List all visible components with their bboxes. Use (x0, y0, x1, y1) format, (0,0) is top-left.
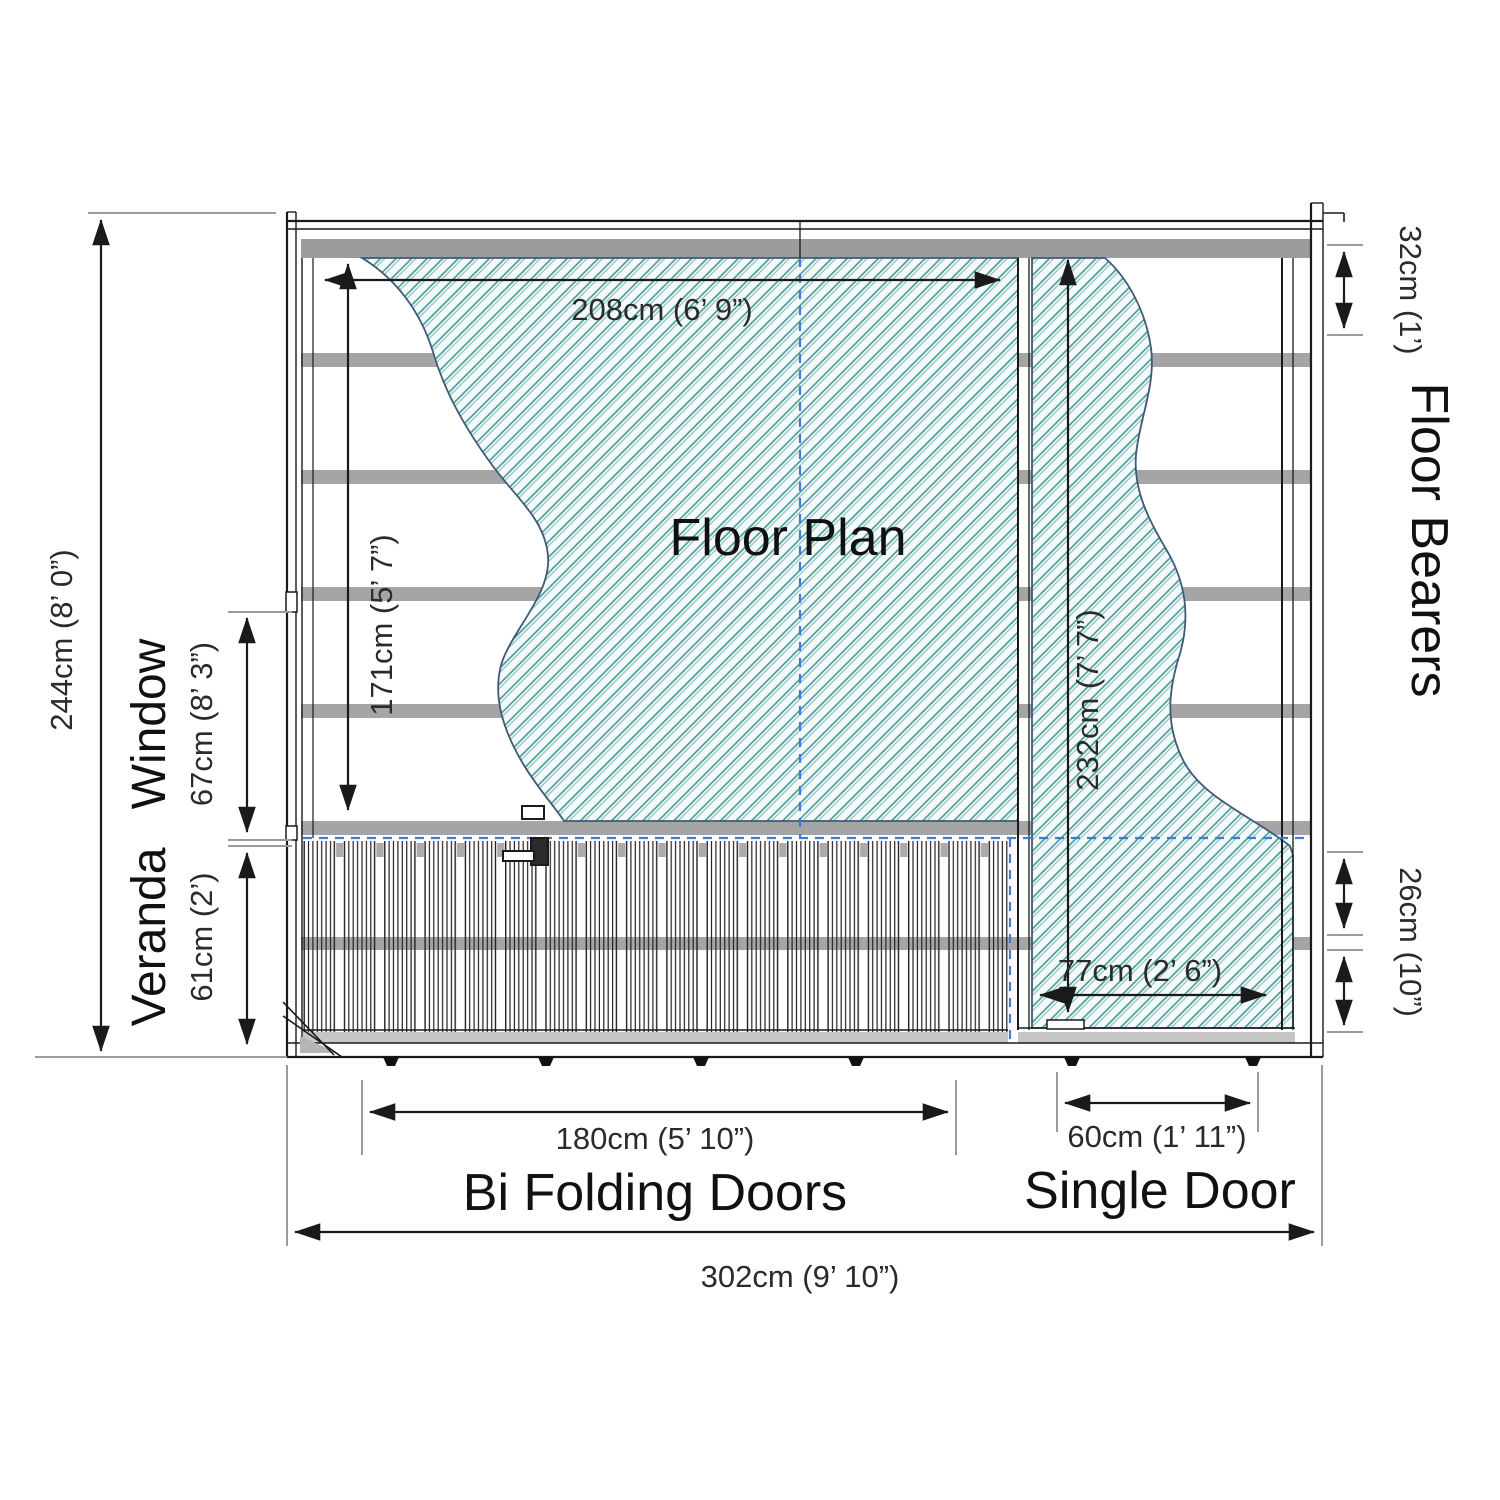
shed-structure (283, 203, 1344, 1066)
bearer-spacing-small-label: 26cm (10”) (1393, 867, 1428, 1017)
window-label: Window (123, 638, 176, 809)
veranda-bottom-rail (303, 1032, 1008, 1043)
floor-plan-drawing: Floor Plan 208cm (6’ 9”) 171cm (5’ 7”) 2… (0, 0, 1500, 1500)
single-door-width-label: 60cm (1’ 11”) (1067, 1119, 1246, 1154)
veranda-label: Veranda (123, 847, 176, 1026)
base-feet (383, 1057, 1261, 1066)
total-width-label: 302cm (9’ 10”) (701, 1259, 900, 1294)
floor-bearers-label: Floor Bearers (1400, 383, 1458, 698)
door-stop-block (1047, 1020, 1084, 1029)
veranda-depth-label: 61cm (2’) (184, 872, 219, 1001)
door-clear-width-label: 77cm (2’ 6”) (1058, 953, 1222, 988)
veranda-bearer-gap-squares (303, 843, 1008, 857)
interior-width-label: 208cm (6’ 9”) (571, 292, 752, 327)
window-height-label: 67cm (8’ 3”) (184, 642, 219, 806)
bi-folding-doors-label: Bi Folding Doors (463, 1164, 847, 1222)
floor-plan-title: Floor Plan (670, 509, 907, 567)
bifold-width-label: 180cm (5’ 10”) (556, 1121, 755, 1156)
veranda-decking (303, 841, 1008, 1043)
veranda-slats (303, 841, 1008, 1032)
right-section-height-label: 232cm (7’ 7”) (1070, 609, 1105, 790)
interior-height-label: 171cm (5’ 7”) (364, 534, 399, 715)
single-door-label: Single Door (1024, 1162, 1296, 1220)
bifold-handle (503, 806, 548, 865)
bearer-spacing-label: 32cm (1’) (1393, 225, 1428, 354)
total-height-label: 244cm (8’ 0”) (44, 549, 79, 730)
top-bearer-bar (301, 239, 1312, 258)
floor-plan-svg: Floor Plan 208cm (6’ 9”) 171cm (5’ 7”) 2… (0, 0, 1500, 1500)
